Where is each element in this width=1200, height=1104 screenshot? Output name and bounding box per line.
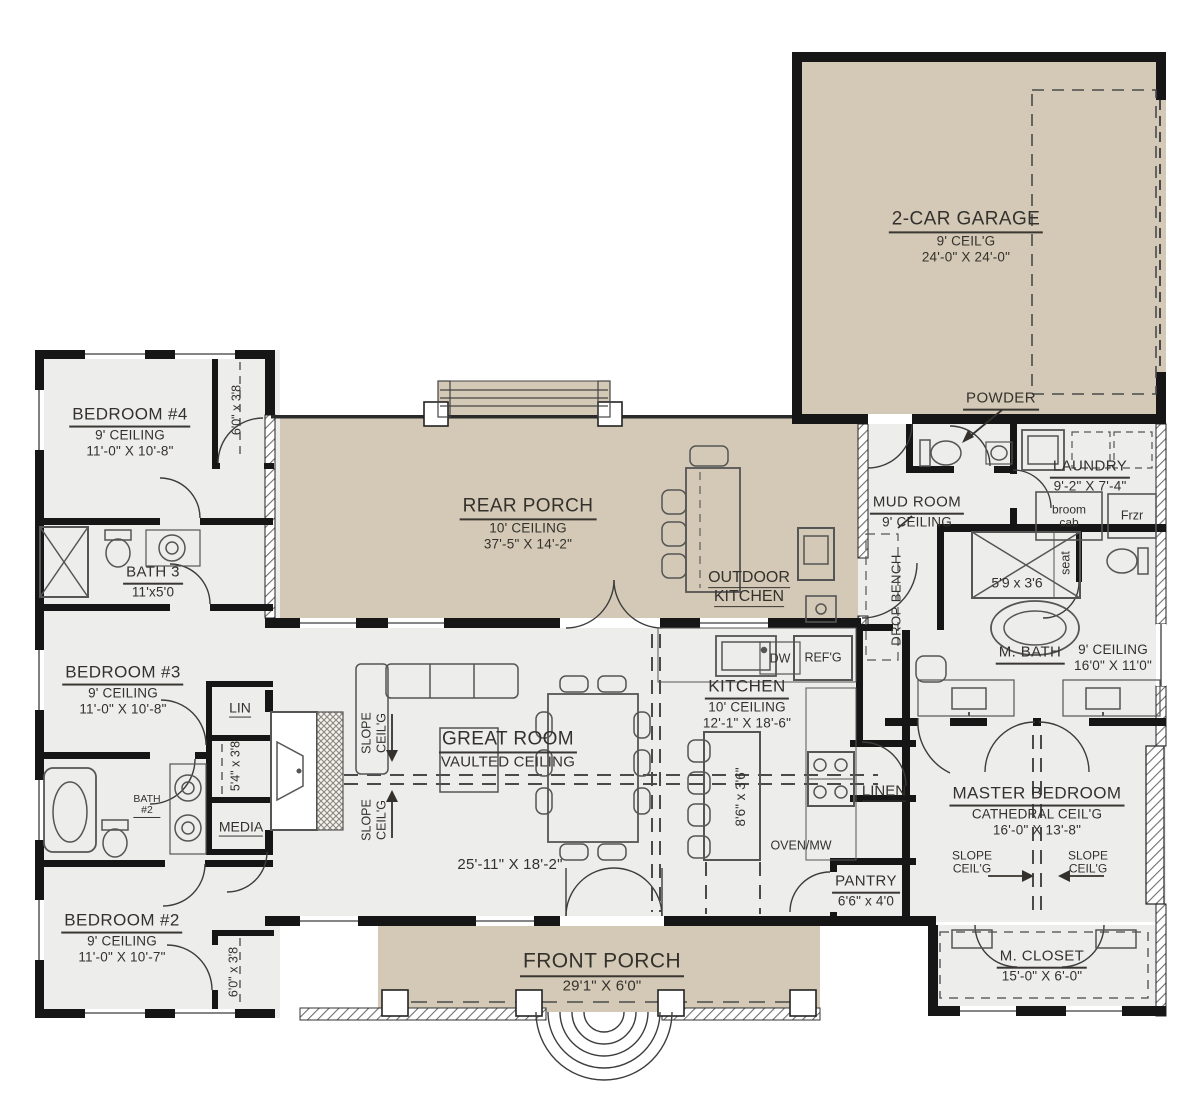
floor-plan: 2-CAR GARAGE 9' CEIL'G 24'-0" X 24'-0" B…	[0, 0, 1200, 1104]
room-name: PANTRY	[832, 873, 900, 894]
oven-mw-label: OVEN/MW	[770, 839, 831, 854]
great-room-dims: 25'-11" X 18'-2"	[457, 856, 562, 874]
room-name: BEDROOM #2	[61, 911, 182, 934]
room-name-line1: OUTDOOR	[708, 569, 790, 588]
slope-line1: SLOPE	[359, 799, 374, 841]
room-label-rear-porch: REAR PORCH 10' CEILING 37'-5" X 14'-2"	[460, 495, 597, 552]
m-bath-dims-label: 9' CEILING 16'0" X 11'0"	[1074, 642, 1152, 674]
room-label-powder: POWDER	[963, 390, 1039, 411]
room-dims: 24'-0" X 24'-0"	[889, 250, 1043, 266]
room-name: REAR PORCH	[460, 495, 597, 520]
room-label-bedroom3: BEDROOM #3 9' CEILING 11'-0" X 10'-8"	[62, 663, 183, 718]
media-closet-dims-label: 5'4" x 3'8	[229, 741, 244, 791]
room-dims: 11'-0" X 10'-8"	[69, 444, 190, 460]
slope-ceiling-label: SLOPE CEIL'G	[1068, 849, 1108, 874]
room-name: M. BATH	[996, 644, 1065, 665]
room-label-mud-room: MUD ROOM 9' CEILING	[870, 494, 964, 531]
room-ceiling: 10' CEILING	[460, 521, 597, 537]
room-label-m-bath: M. BATH	[996, 644, 1065, 665]
dw-label: DW	[770, 652, 791, 667]
room-ceiling: 9' CEILING	[1074, 642, 1152, 658]
slope-line2: CEIL'G	[1068, 862, 1108, 875]
room-name-line2: KITCHEN	[714, 588, 784, 607]
room-label-kitchen: KITCHEN 10' CEILING 12'-1" X 18'-6"	[703, 677, 791, 732]
refg-label: REF'G	[804, 651, 841, 666]
room-name: BEDROOM #3	[62, 663, 183, 686]
slope-line1: SLOPE	[359, 712, 374, 754]
window-seat	[1146, 746, 1164, 904]
fireplace-icon	[271, 712, 343, 830]
room-label-bedroom2: BEDROOM #2 9' CEILING 11'-0" X 10'-7"	[61, 911, 182, 966]
media-text: MEDIA	[219, 819, 263, 837]
room-ceiling: 9' CEILING	[61, 934, 182, 950]
room-name: GREAT ROOM	[439, 728, 577, 753]
room-name: POWDER	[963, 390, 1039, 411]
island-dims-label: 8'6" x 3'6"	[733, 767, 749, 826]
room-dims: 16'-0" X 13'-8"	[949, 823, 1124, 839]
room-dims: 11'-0" X 10'-8"	[62, 702, 183, 718]
slope-line1: SLOPE	[1068, 849, 1108, 862]
room-name: FRONT PORCH	[520, 949, 684, 977]
frzr-label: Frzr	[1121, 509, 1143, 524]
room-name: BEDROOM #4	[69, 405, 190, 428]
media-label: MEDIA	[219, 819, 263, 838]
lin-text: LIN	[229, 700, 251, 718]
linen-text: LINEN	[862, 783, 906, 802]
broom-cab-label: broom cab	[1052, 503, 1086, 528]
slope-ceiling-label: SLOPE CEIL'G	[359, 799, 389, 841]
room-name: KITCHEN	[705, 677, 788, 700]
room-ceiling: 10' CEILING	[703, 700, 791, 716]
room-label-pantry: PANTRY 6'6" x 4'0	[832, 873, 900, 910]
room-ceiling: 9' CEILING	[69, 428, 190, 444]
room-dims: 15'-0" X 6'-0"	[997, 968, 1087, 984]
room-label-master: MASTER BEDROOM CATHEDRAL CEIL'G 16'-0" X…	[949, 784, 1124, 839]
slope-line1: SLOPE	[952, 849, 992, 862]
room-label-great-room: GREAT ROOM VAULTED CEILING	[439, 728, 577, 771]
room-ceiling: VAULTED CEILING	[439, 754, 577, 772]
room-dims: 6'6" x 4'0	[832, 893, 900, 909]
room-name: M. CLOSET	[997, 948, 1087, 969]
room-label-m-closet: M. CLOSET 15'-0" X 6'-0"	[997, 948, 1087, 985]
room-ceiling: 9' CEILING	[870, 514, 964, 530]
bath2-line2: #2	[133, 805, 160, 818]
room-name: MUD ROOM	[870, 494, 964, 515]
shower-dims-label: 5'9 x 3'6	[991, 575, 1042, 592]
room-name: MASTER BEDROOM	[949, 784, 1124, 807]
broom-cab-line1: broom	[1052, 503, 1086, 516]
room-dims: 37'-5" X 14'-2"	[460, 537, 597, 553]
room-dims: 16'0" X 11'0"	[1074, 658, 1152, 674]
room-name: 2-CAR GARAGE	[889, 208, 1043, 233]
seat-label: seat	[1059, 551, 1074, 575]
slope-ceiling-label: SLOPE CEIL'G	[952, 849, 992, 874]
drop-bench-label: DROP BENCH	[888, 554, 903, 645]
broom-cab-line2: cab	[1052, 516, 1086, 529]
room-label-front-porch: FRONT PORCH 29'1" X 6'0"	[520, 949, 684, 994]
room-label-laundry: LAUNDRY 9'-2" X 7'-4"	[1050, 458, 1130, 495]
room-ceiling: CATHEDRAL CEIL'G	[949, 807, 1124, 823]
room-label-bath3: BATH 3 11'x5'0	[123, 564, 183, 601]
closet4-dims-label: 6'0" x 3'8	[230, 385, 245, 435]
slope-ceiling-label: SLOPE CEIL'G	[359, 712, 389, 754]
slope-line2: CEIL'G	[374, 799, 389, 841]
slope-line2: CEIL'G	[374, 712, 389, 754]
room-dims: 12'-1" X 18'-6"	[703, 716, 791, 732]
room-label-outdoor-kitchen: OUTDOOR KITCHEN	[708, 569, 790, 607]
linen-label: LINEN	[862, 783, 906, 802]
room-ceiling: 9' CEILING	[62, 686, 183, 702]
room-name: LAUNDRY	[1050, 458, 1130, 479]
bath2-label: BATH #2	[133, 794, 160, 818]
room-label-bedroom4: BEDROOM #4 9' CEILING 11'-0" X 10'-8"	[69, 405, 190, 460]
closet2-dims-label: 6'0" x 3'8	[227, 947, 242, 997]
room-dims: 29'1" X 6'0"	[520, 977, 684, 995]
front-steps	[536, 1012, 672, 1080]
room-name: BATH 3	[123, 564, 183, 585]
room-label-garage: 2-CAR GARAGE 9' CEIL'G 24'-0" X 24'-0"	[889, 208, 1043, 265]
room-dims: 11'x5'0	[123, 584, 183, 600]
slope-line2: CEIL'G	[952, 862, 992, 875]
room-ceiling: 9' CEIL'G	[889, 234, 1043, 250]
room-dims: 11'-0" X 10'-7"	[61, 950, 182, 966]
lin-label: LIN	[229, 700, 251, 719]
room-dims: 9'-2" X 7'-4"	[1050, 478, 1130, 494]
